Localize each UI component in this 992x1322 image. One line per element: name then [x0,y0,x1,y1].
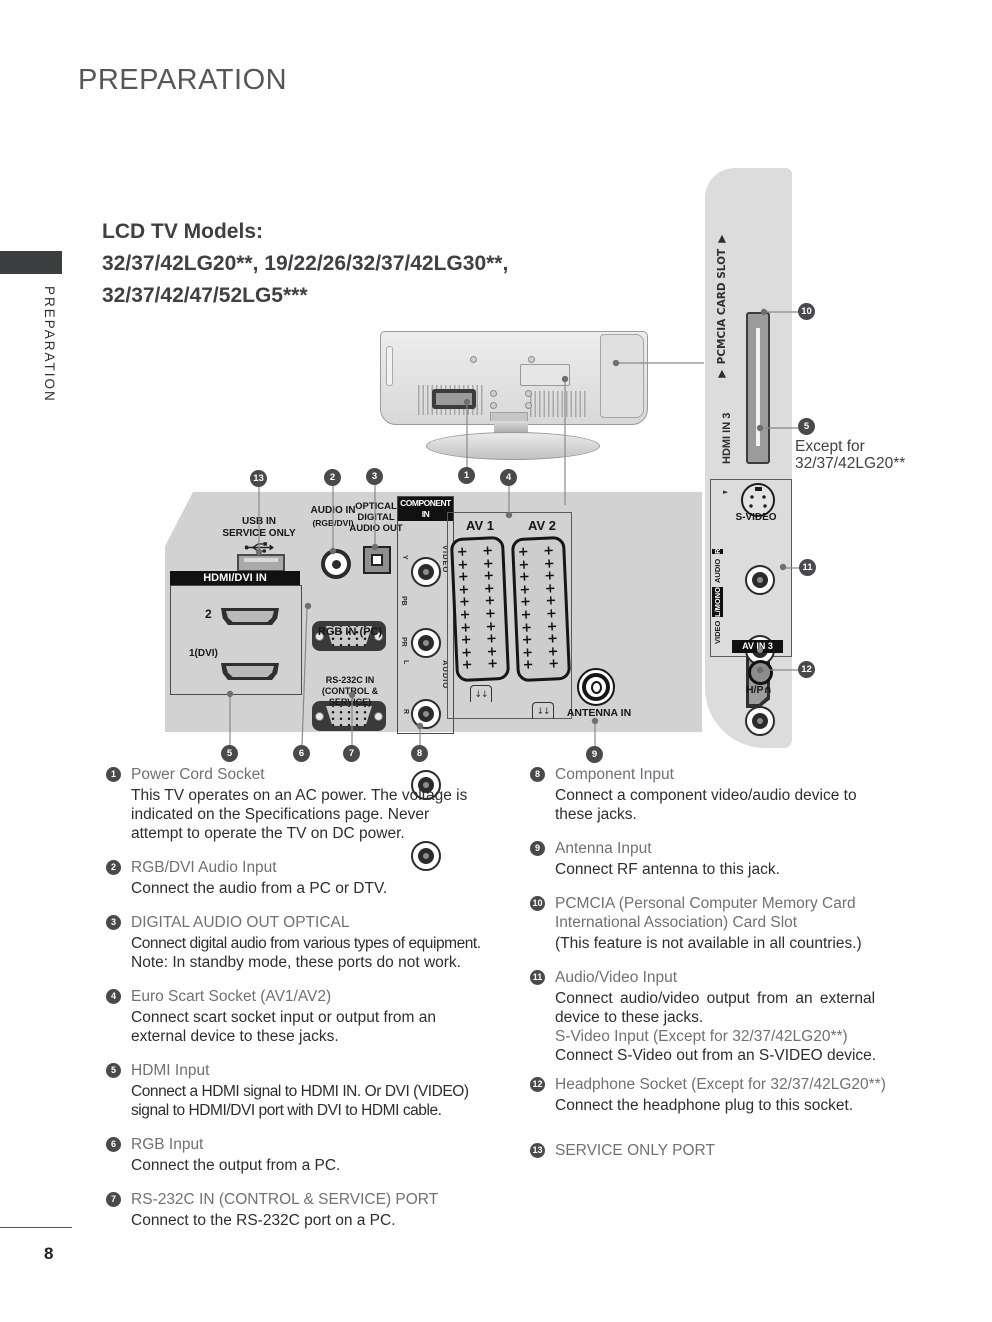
tv-screw [528,356,535,363]
page-number: 8 [44,1244,53,1264]
legend-body-line: signal to HDMI/DVI port with DVI to HDMI… [131,1101,521,1120]
legend-subheading-svideo: S-Video Input (Except for 32/37/42LG20**… [555,1027,965,1046]
tv-connector-recess [520,364,570,386]
legend-heading-line: International Association) Card Slot [555,913,856,932]
tv-vent-right [530,391,588,417]
legend-num-5: 5 [106,1063,121,1078]
legend-num-12: 12 [530,1077,545,1092]
scart-plug-icon [470,685,492,702]
component-in-label: COMPONENT IN [398,497,453,521]
legend-item-10: 10 PCMCIA (Personal Computer Memory Card… [530,894,965,953]
component-pb-jack [411,628,441,658]
legend-body-line: Connect S-Video out from an S-VIDEO devi… [555,1046,965,1065]
callout-5: 5 [221,745,238,762]
model-list-line2: 32/37/42/47/52LG5*** [102,280,508,312]
hdmi-dvi-in-box: 2 1(DVI) [170,585,302,695]
component-label-line2: IN [398,509,453,520]
legend-item-2: 2RGB/DVI Audio Input Connect the audio f… [106,858,521,898]
headphone-label-text: H/P [746,684,764,696]
antenna-label: ANTENNA IN [558,707,640,719]
legend-num-10: 10 [530,896,545,911]
legend-heading-2: RGB/DVI Audio Input [131,858,277,877]
av-in-3-box: ► S-VIDEO VIDEOL/MONOAUDIOR AV IN 3 [710,479,792,657]
usb-label-line2: SERVICE ONLY [214,528,304,540]
legend-body-line: Connect audio/video output from an exter… [555,989,965,1008]
legend-heading-3: DIGITAL AUDIO OUT OPTICAL [131,913,349,932]
except-note-line2: 32/37/42LG20** [795,455,945,472]
scart-box: AV 1 AV 2 [447,512,572,719]
footer-rule [0,1227,72,1228]
tv-side-module [600,334,644,418]
legend-heading-12: Headphone Socket (Except for 32/37/42LG2… [555,1075,886,1094]
legend-body-line: device to these jacks. [555,1008,965,1027]
except-note-line1: Except for [795,438,945,455]
legend-body-line: Connect the headphone plug to this socke… [555,1096,965,1115]
page-title: PREPARATION [78,64,287,97]
manual-page: { "page": { "title": "PREPARATION", "sid… [0,0,992,1322]
callout-3: 3 [366,468,383,485]
pcmcia-card-slot [746,312,770,464]
legend-item-11: 11Audio/Video Input Connect audio/video … [530,968,965,1065]
legend-body-line: Connect RF antenna to this jack. [555,860,965,879]
callout-8: 8 [411,745,428,762]
legend-body-line: Connect scart socket input or output fro… [131,1008,521,1027]
scart-socket-av1 [450,536,510,682]
svideo-arrow-icon: ► [723,488,728,496]
component-l-label: L [402,660,409,664]
component-label-line1: COMPONENT [398,498,453,509]
hdmi-port2 [221,608,279,625]
callout-12: 12 [798,661,815,678]
component-y-jack [411,557,441,587]
tv-handle [386,346,393,386]
callout-13: 13 [250,470,267,487]
rs232c-line1: RS-232C IN [300,675,400,686]
tv-power-socket [432,389,476,409]
pcmcia-slot-label: ▼ PCMCIA CARD SLOT ▼ [716,212,728,380]
callout-1: 1 [458,467,475,484]
tv-screw [490,402,497,409]
legend-item-3: 3DIGITAL AUDIO OUT OPTICAL Connect digit… [106,913,521,972]
legend-num-9: 9 [530,841,545,856]
legend-item-8: 8Component Input Connect a component vid… [530,765,965,824]
legend-item-4: 4Euro Scart Socket (AV1/AV2) Connect sca… [106,987,521,1046]
headphone-jack [748,660,773,685]
av-jack-labels: VIDEOL/MONOAUDIOR [713,524,722,646]
audio-in-jack [321,549,351,579]
tv-rear-illustration [378,328,650,462]
legend-body-line: these jacks. [555,805,965,824]
component-pr-label: PR [400,637,407,647]
legend-item-1: 1Power Cord Socket This TV operates on a… [106,765,521,843]
tv-stand-base [426,432,600,460]
usb-icon [244,541,274,554]
component-r-label: R [402,709,409,714]
usb-service-label: USB IN SERVICE ONLY [214,516,304,540]
legend-num-1: 1 [106,767,121,782]
legend-body-line: This TV operates on an AC power. The vol… [131,786,521,805]
legend-heading-10: PCMCIA (Personal Computer Memory Card In… [555,894,856,932]
legend-heading-1: Power Cord Socket [131,765,265,784]
av3-video-jack [745,565,775,595]
hdmi-port1-label: 1(DVI) [189,648,218,659]
av-video-label: VIDEO [713,621,722,644]
legend-item-9: 9Antenna Input Connect RF antenna to thi… [530,839,965,879]
except-note: Except for 32/37/42LG20** [795,438,945,472]
legend-body-line: Connect a HDMI signal to HDMI IN. Or DVI… [131,1082,521,1101]
legend-body-line: Connect digital audio from various types… [131,934,521,953]
legend-body-line: Connect the audio from a PC or DTV. [131,879,521,898]
tv-screw [470,356,477,363]
component-y-label: Y [401,555,408,560]
callout-9: 9 [586,746,603,763]
model-list-line1: 32/37/42LG20**, 19/22/26/32/37/42LG30**, [102,248,508,280]
hdmi-dvi-in-label: HDMI/DVI IN [170,571,300,585]
hdmi-port1-dvi [221,663,279,680]
av2-label: AV 2 [522,518,562,533]
legend-num-7: 7 [106,1192,121,1207]
legend-body-line: Connect a component video/audio device t… [555,786,965,805]
callout-11: 11 [799,559,816,576]
rs232c-label: RS-232C IN (CONTROL & SERVICE) [300,675,400,708]
legend-heading-11: Audio/Video Input [555,968,677,987]
legend-heading-5: HDMI Input [131,1061,209,1080]
scart-socket-av2 [511,536,571,682]
hdmi-port2-label: 2 [205,607,212,621]
legend-body-line: external device to these jacks. [131,1027,521,1046]
usb-label-line1: USB IN [214,516,304,528]
legend-num-2: 2 [106,860,121,875]
tv-screw [525,390,532,397]
optical-port [363,546,391,574]
rs232c-line2: (CONTROL & SERVICE) [300,686,400,708]
tv-screw [525,402,532,409]
legend-left-column: 1Power Cord Socket This TV operates on a… [106,765,521,1245]
legend-item-12: 12Headphone Socket (Except for 32/37/42L… [530,1075,965,1115]
legend-heading-4: Euro Scart Socket (AV1/AV2) [131,987,331,1006]
legend-heading-line: PCMCIA (Personal Computer Memory Card [555,894,856,913]
av-lmono-label: L/MONO [712,587,723,617]
tv-bottom-tab [490,412,528,421]
legend-right-column: 8Component Input Connect a component vid… [530,765,965,1175]
model-list: LCD TV Models: 32/37/42LG20**, 19/22/26/… [102,216,508,312]
av-r-label: R [712,549,723,554]
callout-10: 10 [798,303,815,320]
legend-heading-13: SERVICE ONLY PORT [555,1141,715,1160]
legend-body-line: Note: In standby mode, these ports do no… [131,953,521,972]
legend-heading-8: Component Input [555,765,674,784]
legend-body-line: (This feature is not available in all co… [555,934,965,953]
legend-num-6: 6 [106,1137,121,1152]
component-in-panel: COMPONENT IN Y PB PR L R VIDEO AUDIO [397,496,454,734]
model-list-heading: LCD TV Models: [102,216,508,248]
callout-6: 6 [293,745,310,762]
callout-5-side: 5 [798,418,815,435]
legend-num-13: 13 [530,1143,545,1158]
legend-heading-9: Antenna Input [555,839,652,858]
legend-num-11: 11 [530,970,545,985]
component-pr-jack [411,699,441,729]
callout-7: 7 [343,745,360,762]
hdmi-in-3-label: HDMI IN 3 [721,402,733,464]
usb-port [237,554,285,572]
tv-screw [490,390,497,397]
legend-body-line: Connect to the RS-232C port on a PC. [131,1211,521,1230]
legend-body-line: attempt to operate the TV on DC power. [131,824,521,843]
av1-label: AV 1 [460,518,500,533]
scart-plug-icon [532,702,554,719]
headphone-label: H/P∩ [738,684,780,696]
rgb-in-label: RGB IN (PC) [312,626,388,638]
antenna-socket [577,668,615,706]
callout-4: 4 [500,469,517,486]
legend-body-line: indicated on the Specifications page. Ne… [131,805,521,824]
headphone-icon: ∩ [763,684,772,696]
legend-item-5: 5HDMI Input Connect a HDMI signal to HDM… [106,1061,521,1120]
legend-body-line: Connect the output from a PC. [131,1156,521,1175]
legend-heading-6: RGB Input [131,1135,203,1154]
legend-num-4: 4 [106,989,121,1004]
legend-item-13: 13SERVICE ONLY PORT [530,1141,965,1160]
callout-2: 2 [324,469,341,486]
s-video-label: S-VIDEO [727,512,785,523]
legend-num-3: 3 [106,915,121,930]
legend-item-6: 6RGB Input Connect the output from a PC. [106,1135,521,1175]
av-audio-label: AUDIO [713,558,722,582]
sidebar-tab-block [0,251,62,274]
av3-audio-r-jack [745,706,775,736]
legend-heading-7: RS-232C IN (CONTROL & SERVICE) PORT [131,1190,438,1209]
legend-item-7: 7RS-232C IN (CONTROL & SERVICE) PORT Con… [106,1190,521,1230]
component-pb-label: PB [400,596,407,606]
legend-num-8: 8 [530,767,545,782]
sidebar-section-label: PREPARATION [42,286,57,416]
